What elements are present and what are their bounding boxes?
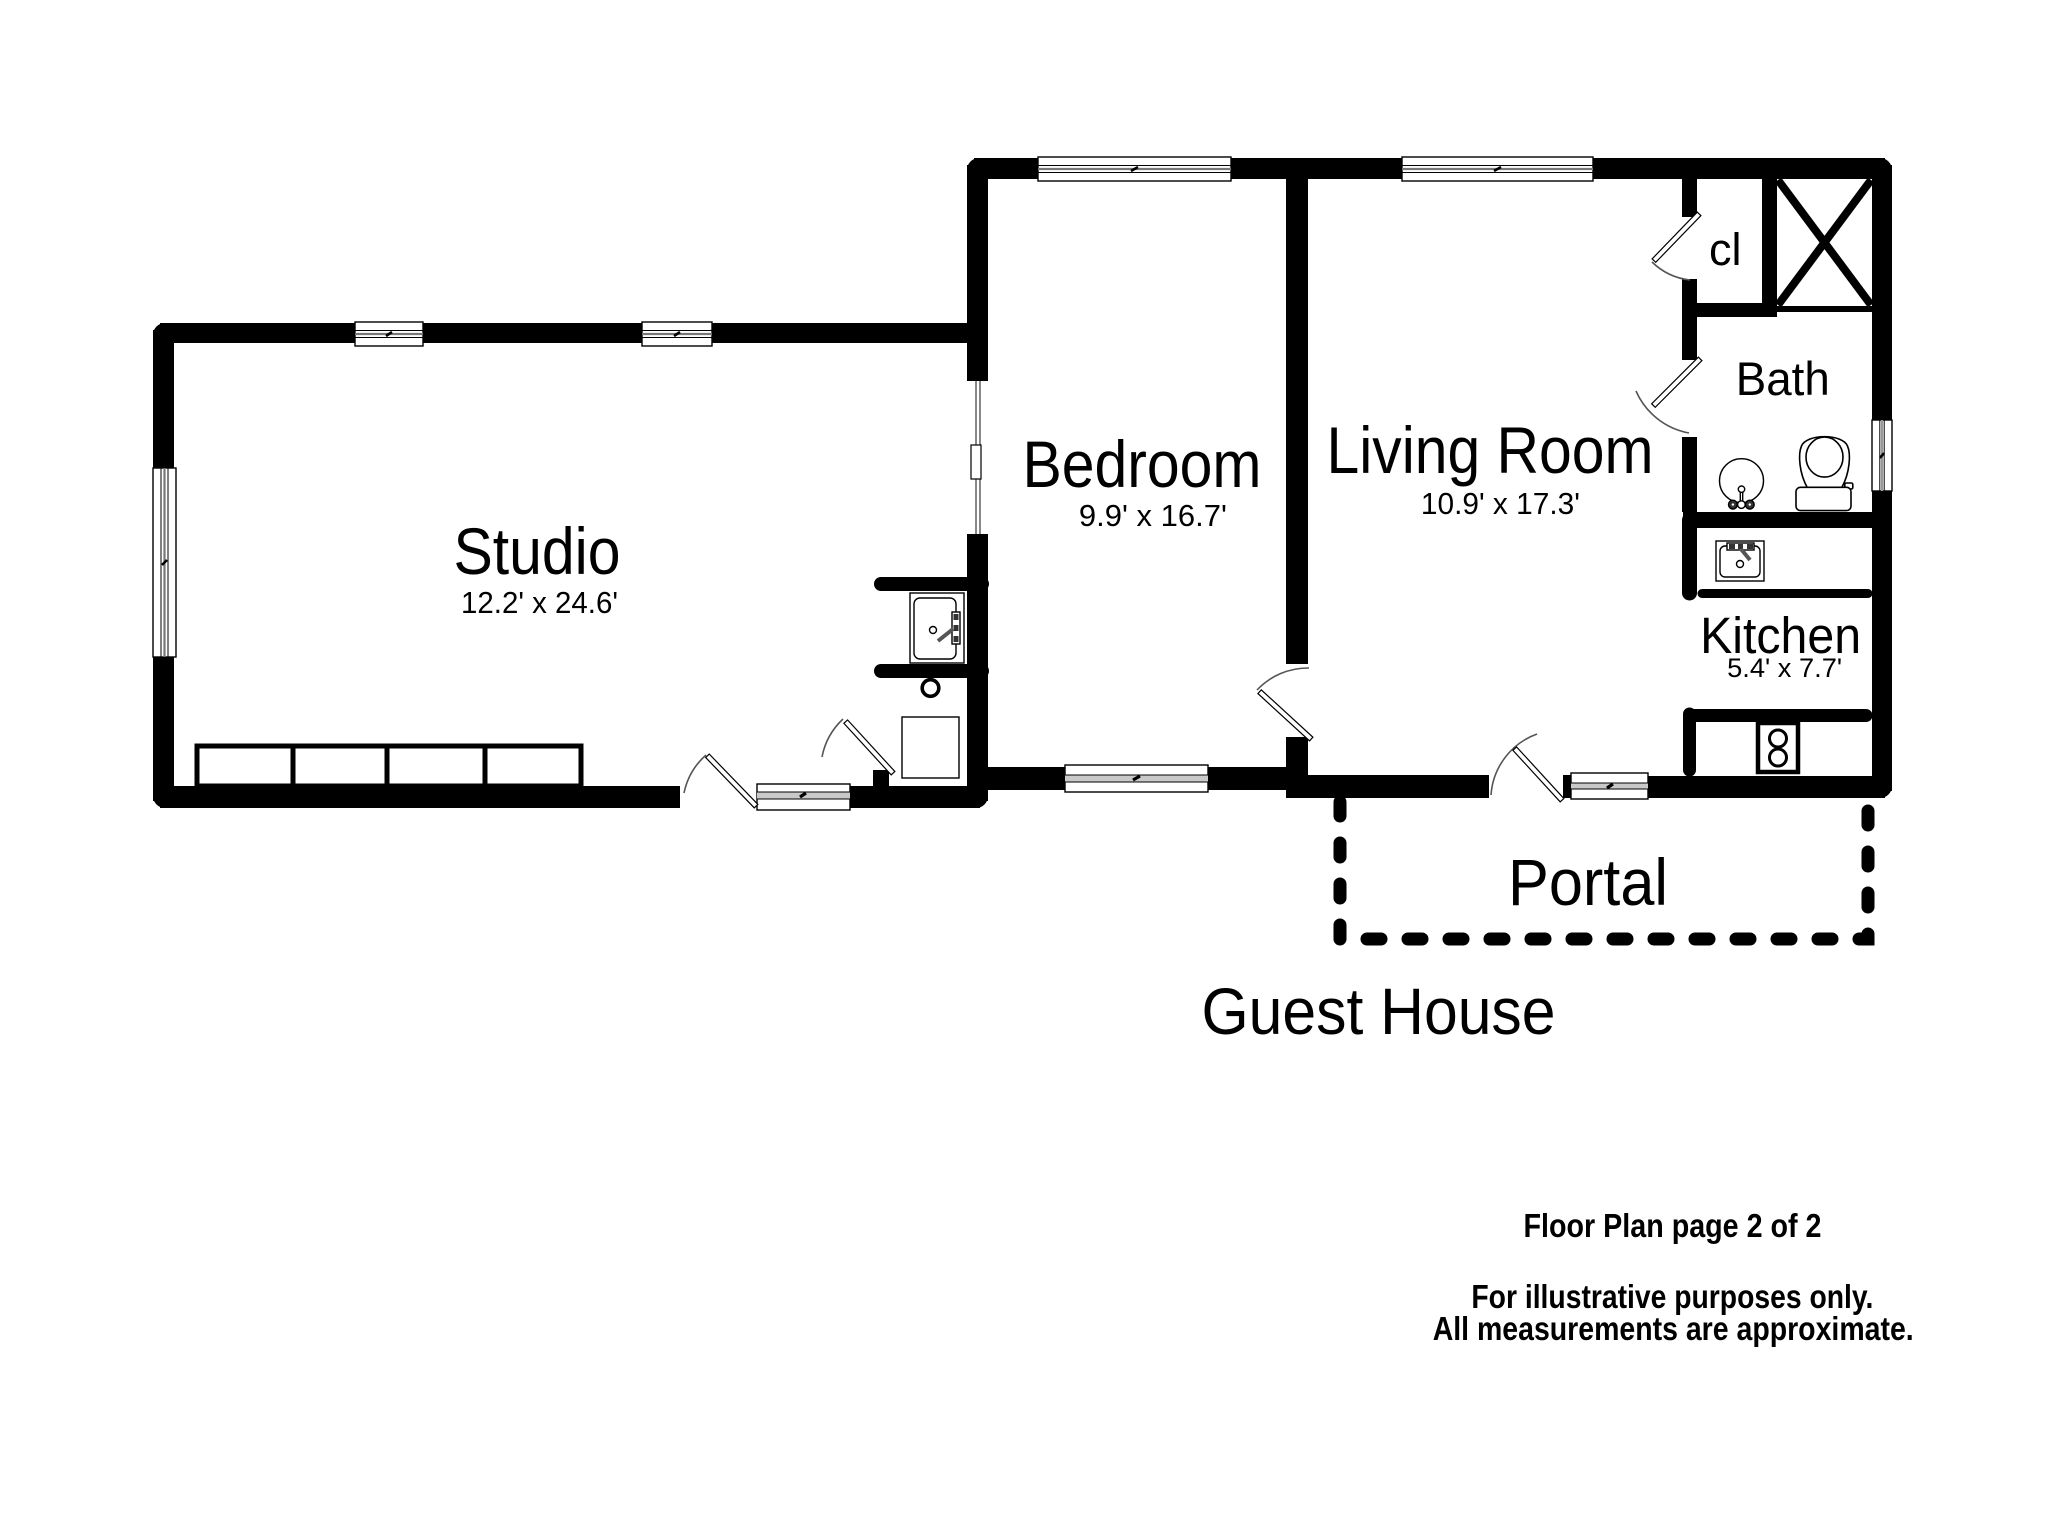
svg-text:Guest House: Guest House — [1202, 974, 1556, 1048]
svg-text:Studio: Studio — [454, 514, 621, 588]
svg-text:Living Room: Living Room — [1327, 413, 1654, 487]
svg-text:Bath: Bath — [1736, 352, 1830, 405]
svg-text:All measurements are approxima: All measurements are approximate. — [1433, 1310, 1914, 1347]
svg-text:cl: cl — [1709, 224, 1742, 275]
svg-text:Floor Plan page 2 of 2: Floor Plan page 2 of 2 — [1524, 1207, 1822, 1244]
svg-text:Bedroom: Bedroom — [1023, 427, 1262, 501]
svg-text:5.4' x 7.7': 5.4' x 7.7' — [1727, 653, 1842, 683]
svg-text:12.2' x 24.6': 12.2' x 24.6' — [461, 585, 618, 620]
svg-text:10.9' x 17.3': 10.9' x 17.3' — [1421, 486, 1580, 521]
svg-text:9.9' x 16.7': 9.9' x 16.7' — [1079, 498, 1227, 533]
svg-text:Portal: Portal — [1508, 845, 1668, 919]
